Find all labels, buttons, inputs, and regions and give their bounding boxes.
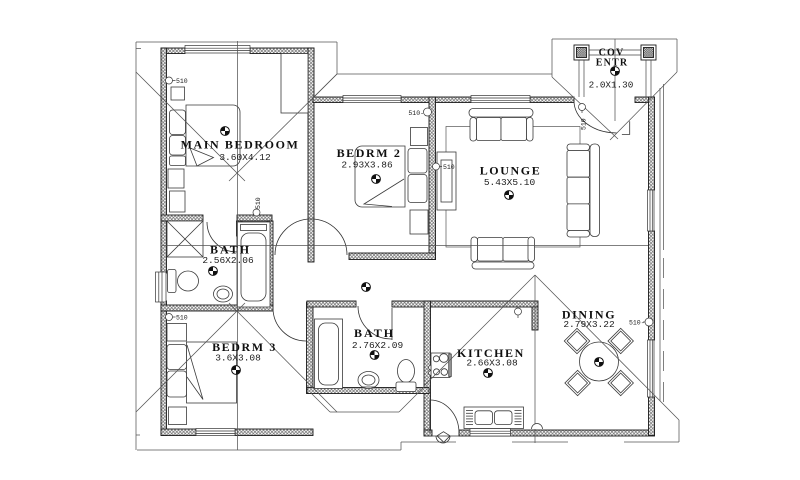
svg-text:2.79X3.22: 2.79X3.22 (563, 319, 615, 330)
svg-text:ENTR: ENTR (596, 58, 629, 69)
svg-text:3.60X4.12: 3.60X4.12 (219, 152, 271, 163)
svg-text:2.76X2.09: 2.76X2.09 (352, 340, 404, 351)
svg-text:510-: 510- (629, 320, 645, 327)
svg-text:2.56X2.06: 2.56X2.06 (202, 255, 254, 266)
svg-text:510: 510 (581, 118, 588, 130)
svg-text:510: 510 (443, 164, 455, 171)
svg-text:LOUNGE: LOUNGE (480, 164, 542, 178)
svg-text:BATH: BATH (354, 326, 395, 340)
svg-text:510-: 510- (408, 110, 424, 117)
svg-text:2.66X3.08: 2.66X3.08 (466, 358, 518, 369)
svg-text:5.43X5.10: 5.43X5.10 (484, 177, 536, 188)
svg-text:2.93X3.86: 2.93X3.86 (341, 160, 393, 171)
svg-text:510: 510 (255, 197, 262, 209)
svg-text:510: 510 (176, 78, 188, 85)
svg-text:3.6X3.08: 3.6X3.08 (215, 353, 261, 364)
svg-text:MAIN BEDROOM: MAIN BEDROOM (181, 138, 300, 152)
svg-text:510: 510 (176, 315, 188, 322)
svg-text:2.0X1.30: 2.0X1.30 (589, 80, 634, 91)
svg-text:BEDRM 2: BEDRM 2 (337, 146, 402, 160)
